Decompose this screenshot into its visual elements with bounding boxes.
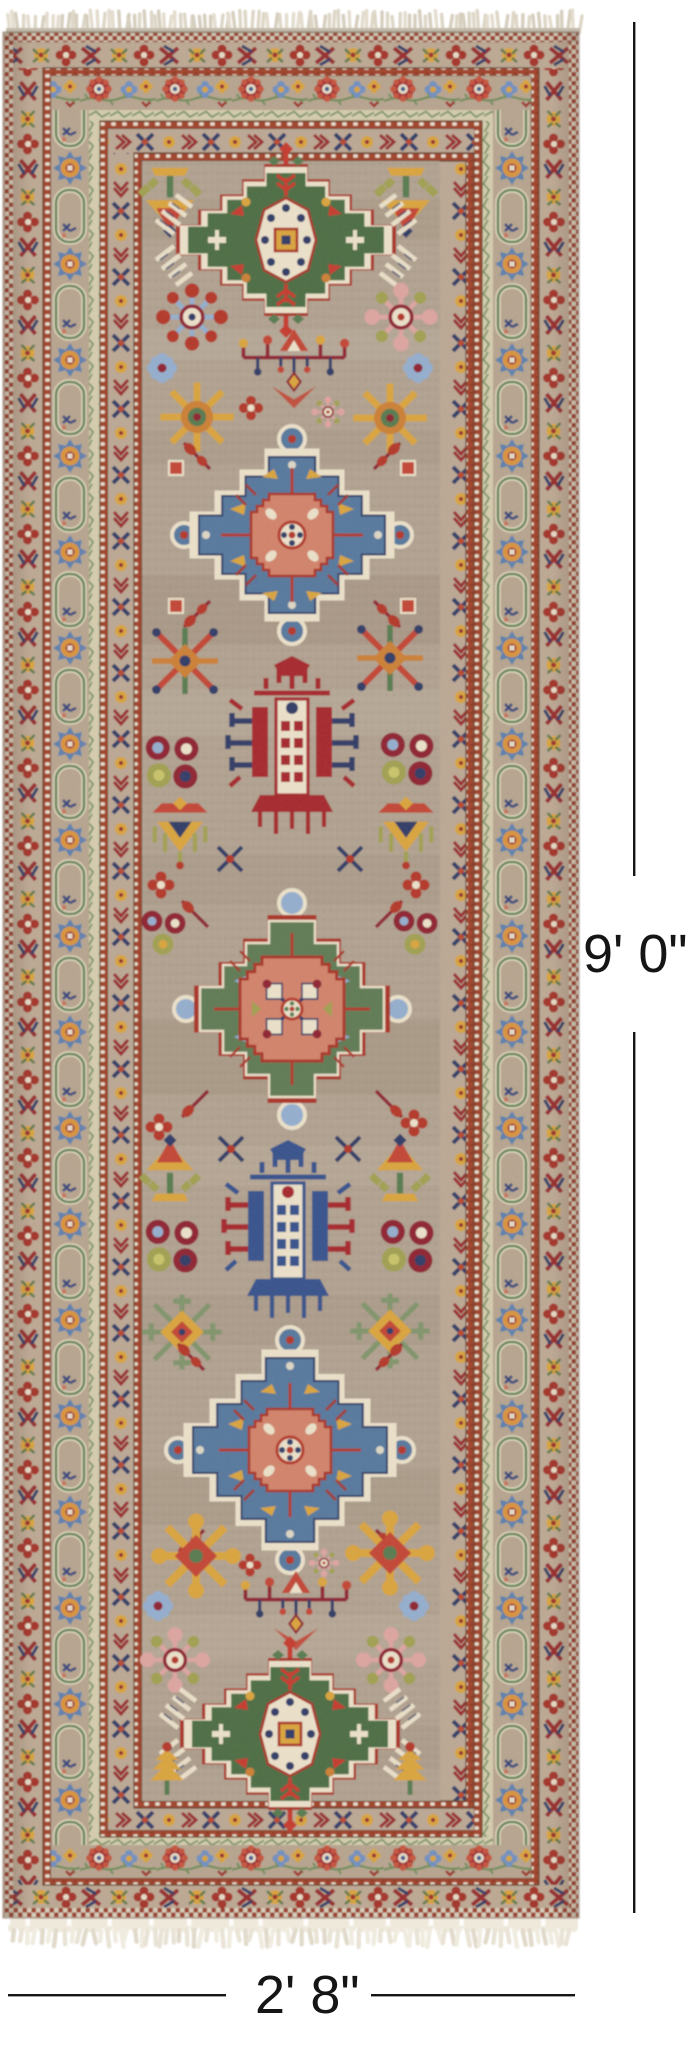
svg-text:2' 8": 2' 8" bbox=[255, 1965, 360, 2025]
svg-text:9' 0": 9' 0" bbox=[583, 924, 688, 984]
